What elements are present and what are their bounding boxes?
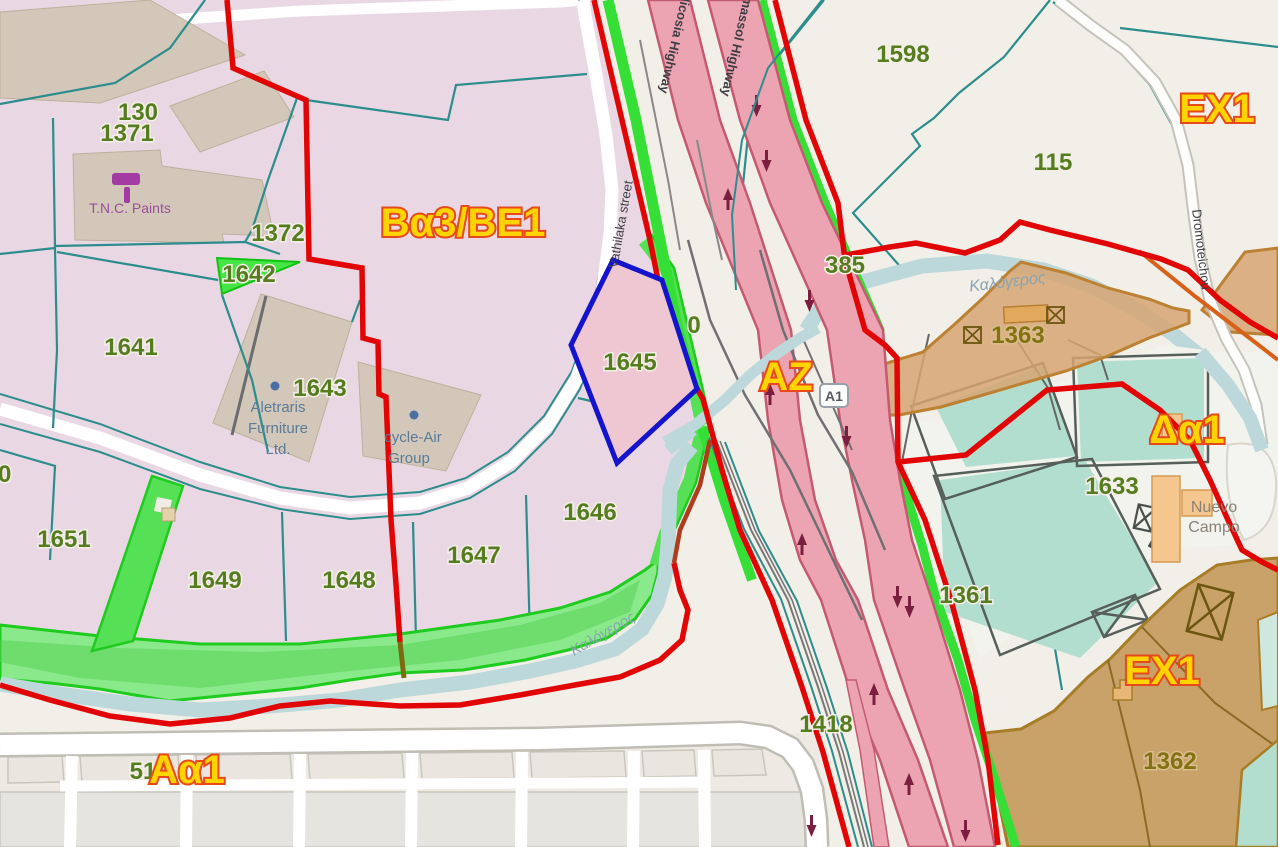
- svg-text:Campo: Campo: [1188, 519, 1240, 536]
- svg-text:Group: Group: [388, 450, 430, 467]
- svg-text:Nuevo: Nuevo: [1191, 499, 1237, 516]
- svg-text:EX1: EX1: [1179, 87, 1255, 131]
- svg-text:1371: 1371: [100, 120, 153, 147]
- svg-text:1361: 1361: [939, 582, 992, 609]
- svg-text:1647: 1647: [447, 542, 500, 569]
- svg-text:1651: 1651: [37, 526, 90, 553]
- svg-text:385: 385: [825, 252, 865, 279]
- svg-text:Bα3/BE1: Bα3/BE1: [381, 201, 546, 245]
- svg-text:AZ: AZ: [759, 355, 812, 399]
- svg-text:1646: 1646: [563, 499, 616, 526]
- svg-text:cycle-Air: cycle-Air: [384, 429, 442, 446]
- svg-text:1642: 1642: [222, 261, 275, 288]
- svg-text:1641: 1641: [104, 334, 157, 361]
- svg-text:1645: 1645: [603, 349, 656, 376]
- svg-text:0: 0: [0, 461, 11, 488]
- svg-text:Aletraris: Aletraris: [250, 399, 305, 416]
- svg-text:Δα1: Δα1: [1149, 408, 1225, 452]
- svg-text:1372: 1372: [251, 220, 304, 247]
- svg-text:1649: 1649: [188, 567, 241, 594]
- svg-text:1643: 1643: [293, 375, 346, 402]
- svg-text:1362: 1362: [1143, 748, 1196, 775]
- svg-text:Aα1: Aα1: [149, 748, 225, 792]
- svg-text:1418: 1418: [799, 711, 852, 738]
- svg-text:A1: A1: [825, 388, 843, 404]
- svg-text:Ltd.: Ltd.: [265, 441, 290, 458]
- svg-text:Furniture: Furniture: [248, 420, 308, 437]
- svg-text:1648: 1648: [322, 567, 375, 594]
- svg-text:EX1: EX1: [1124, 649, 1200, 693]
- svg-text:T.N.C. Paints: T.N.C. Paints: [89, 200, 171, 216]
- svg-text:1633: 1633: [1085, 473, 1138, 500]
- svg-text:0: 0: [687, 312, 700, 339]
- svg-text:1598: 1598: [876, 41, 929, 68]
- svg-text:1363: 1363: [991, 322, 1044, 349]
- svg-text:115: 115: [1034, 149, 1073, 176]
